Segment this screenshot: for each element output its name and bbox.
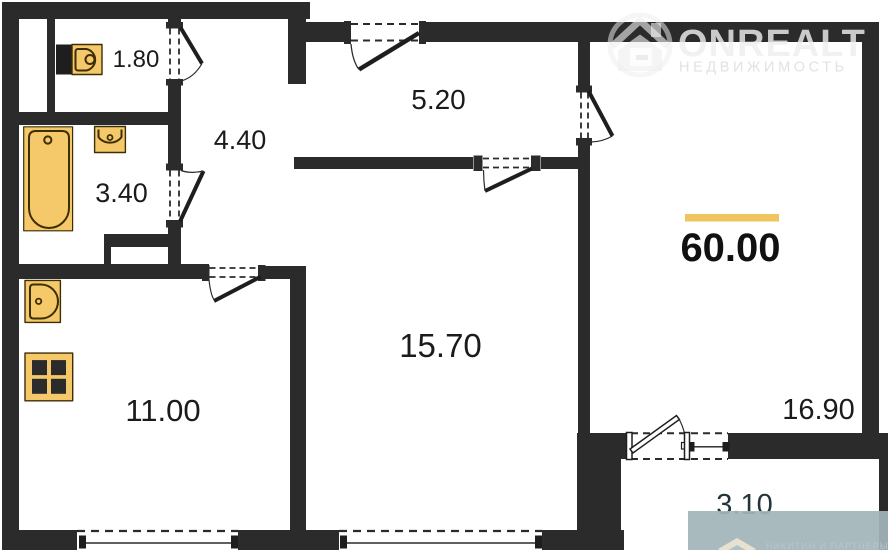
- svg-text:НЕДВИЖИМОСТЬ: НЕДВИЖИМОСТЬ: [679, 60, 848, 76]
- svg-text:15.70: 15.70: [399, 327, 482, 364]
- svg-text:НИКИТИН И ПАРТНЕРЫ: НИКИТИН И ПАРТНЕРЫ: [766, 541, 888, 550]
- svg-text:1.80: 1.80: [113, 46, 160, 73]
- svg-text:5.20: 5.20: [411, 84, 466, 115]
- svg-text:3.40: 3.40: [95, 178, 148, 208]
- svg-text:16.90: 16.90: [782, 394, 855, 426]
- svg-text:11.00: 11.00: [125, 393, 200, 428]
- svg-text:4.40: 4.40: [214, 125, 267, 155]
- svg-text:60.00: 60.00: [680, 226, 780, 270]
